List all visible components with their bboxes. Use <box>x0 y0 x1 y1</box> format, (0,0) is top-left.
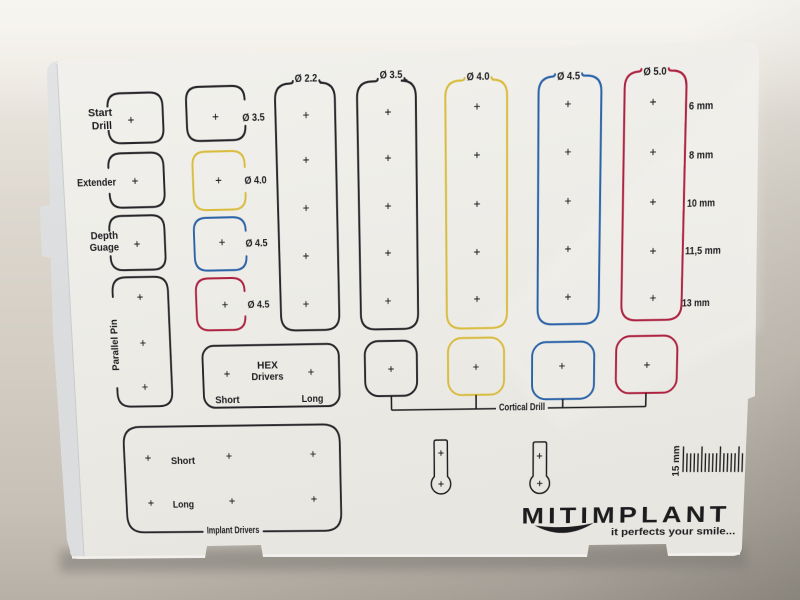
svg-text:Drill: Drill <box>92 119 113 132</box>
svg-text:Drivers: Drivers <box>251 371 283 383</box>
svg-text:Implant Drivers: Implant Drivers <box>207 525 260 537</box>
svg-text:Depth: Depth <box>90 230 118 243</box>
svg-text:13 mm: 13 mm <box>682 297 710 310</box>
svg-text:Cortical Drill: Cortical Drill <box>499 401 545 413</box>
svg-text:Extender: Extender <box>77 176 117 189</box>
svg-text:Ø 4.5: Ø 4.5 <box>247 298 269 310</box>
svg-text:Ø 4.5: Ø 4.5 <box>245 237 267 250</box>
svg-text:HEX: HEX <box>257 360 279 372</box>
svg-text:Ø 3.5: Ø 3.5 <box>380 68 403 81</box>
svg-text:Ø 4.0: Ø 4.0 <box>244 174 267 187</box>
svg-text:11,5 mm: 11,5 mm <box>685 245 721 258</box>
svg-text:10 mm: 10 mm <box>687 197 715 210</box>
svg-text:Ø 4.0: Ø 4.0 <box>467 70 490 83</box>
svg-text:Short: Short <box>171 455 196 467</box>
svg-text:Long: Long <box>302 393 324 405</box>
svg-text:Ø 5.0: Ø 5.0 <box>643 65 667 78</box>
svg-text:MITIMPLANT: MITIMPLANT <box>521 502 730 529</box>
svg-text:Ø 4.5: Ø 4.5 <box>557 70 580 83</box>
svg-text:Ø 2.2: Ø 2.2 <box>295 72 318 85</box>
svg-text:15 mm: 15 mm <box>671 445 682 476</box>
svg-text:Long: Long <box>173 499 195 510</box>
svg-text:Short: Short <box>215 394 240 406</box>
svg-text:6 mm: 6 mm <box>689 100 714 113</box>
svg-text:Start: Start <box>88 106 113 119</box>
svg-text:Guage: Guage <box>89 242 119 255</box>
svg-text:it perfects your smile...: it perfects your smile... <box>611 526 736 538</box>
svg-text:Ø 3.5: Ø 3.5 <box>242 111 265 124</box>
svg-text:Parallel Pin: Parallel Pin <box>108 319 122 371</box>
svg-text:8 mm: 8 mm <box>689 149 713 162</box>
